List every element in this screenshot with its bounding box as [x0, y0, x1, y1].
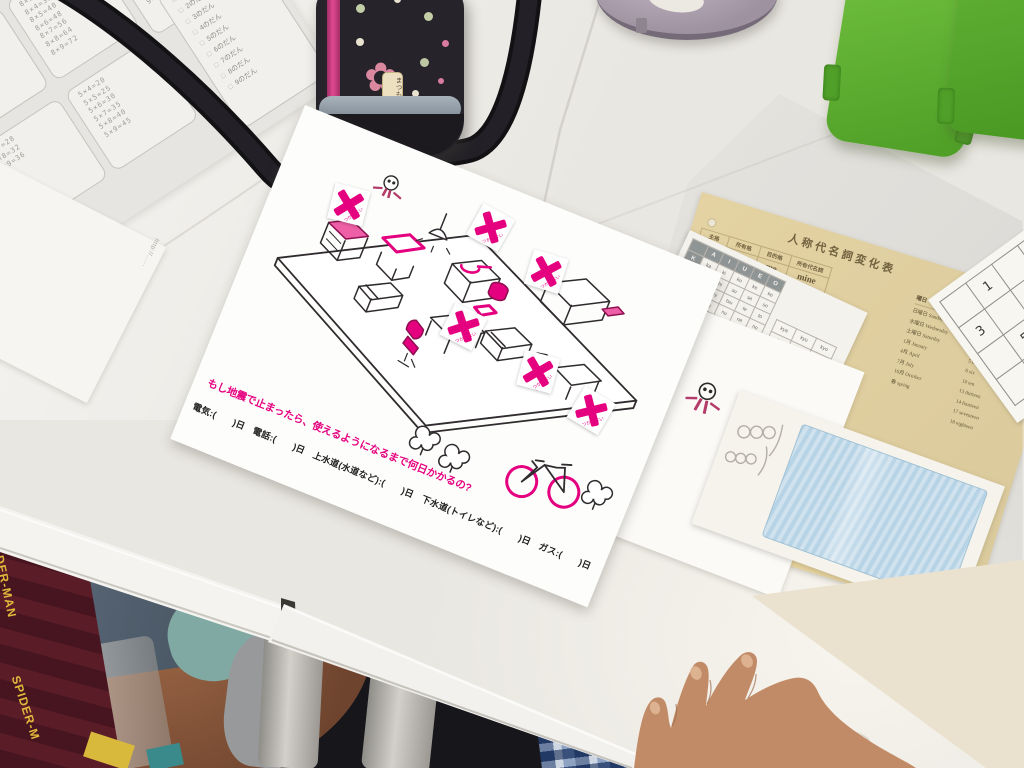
child-hand — [0, 0, 1024, 768]
photo-scene: 7×1= 77×2=147×3=217×4=287×5=357×6=42 8×3… — [0, 0, 1024, 768]
